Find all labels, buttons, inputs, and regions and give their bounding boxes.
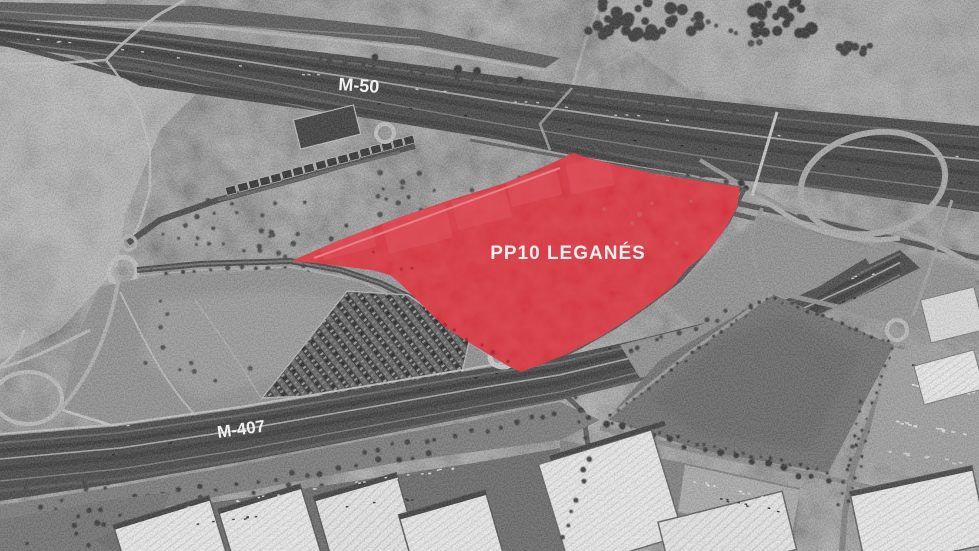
svg-text:M-50: M-50 bbox=[338, 74, 380, 97]
svg-text:PP10 LEGANÉS: PP10 LEGANÉS bbox=[490, 242, 646, 264]
